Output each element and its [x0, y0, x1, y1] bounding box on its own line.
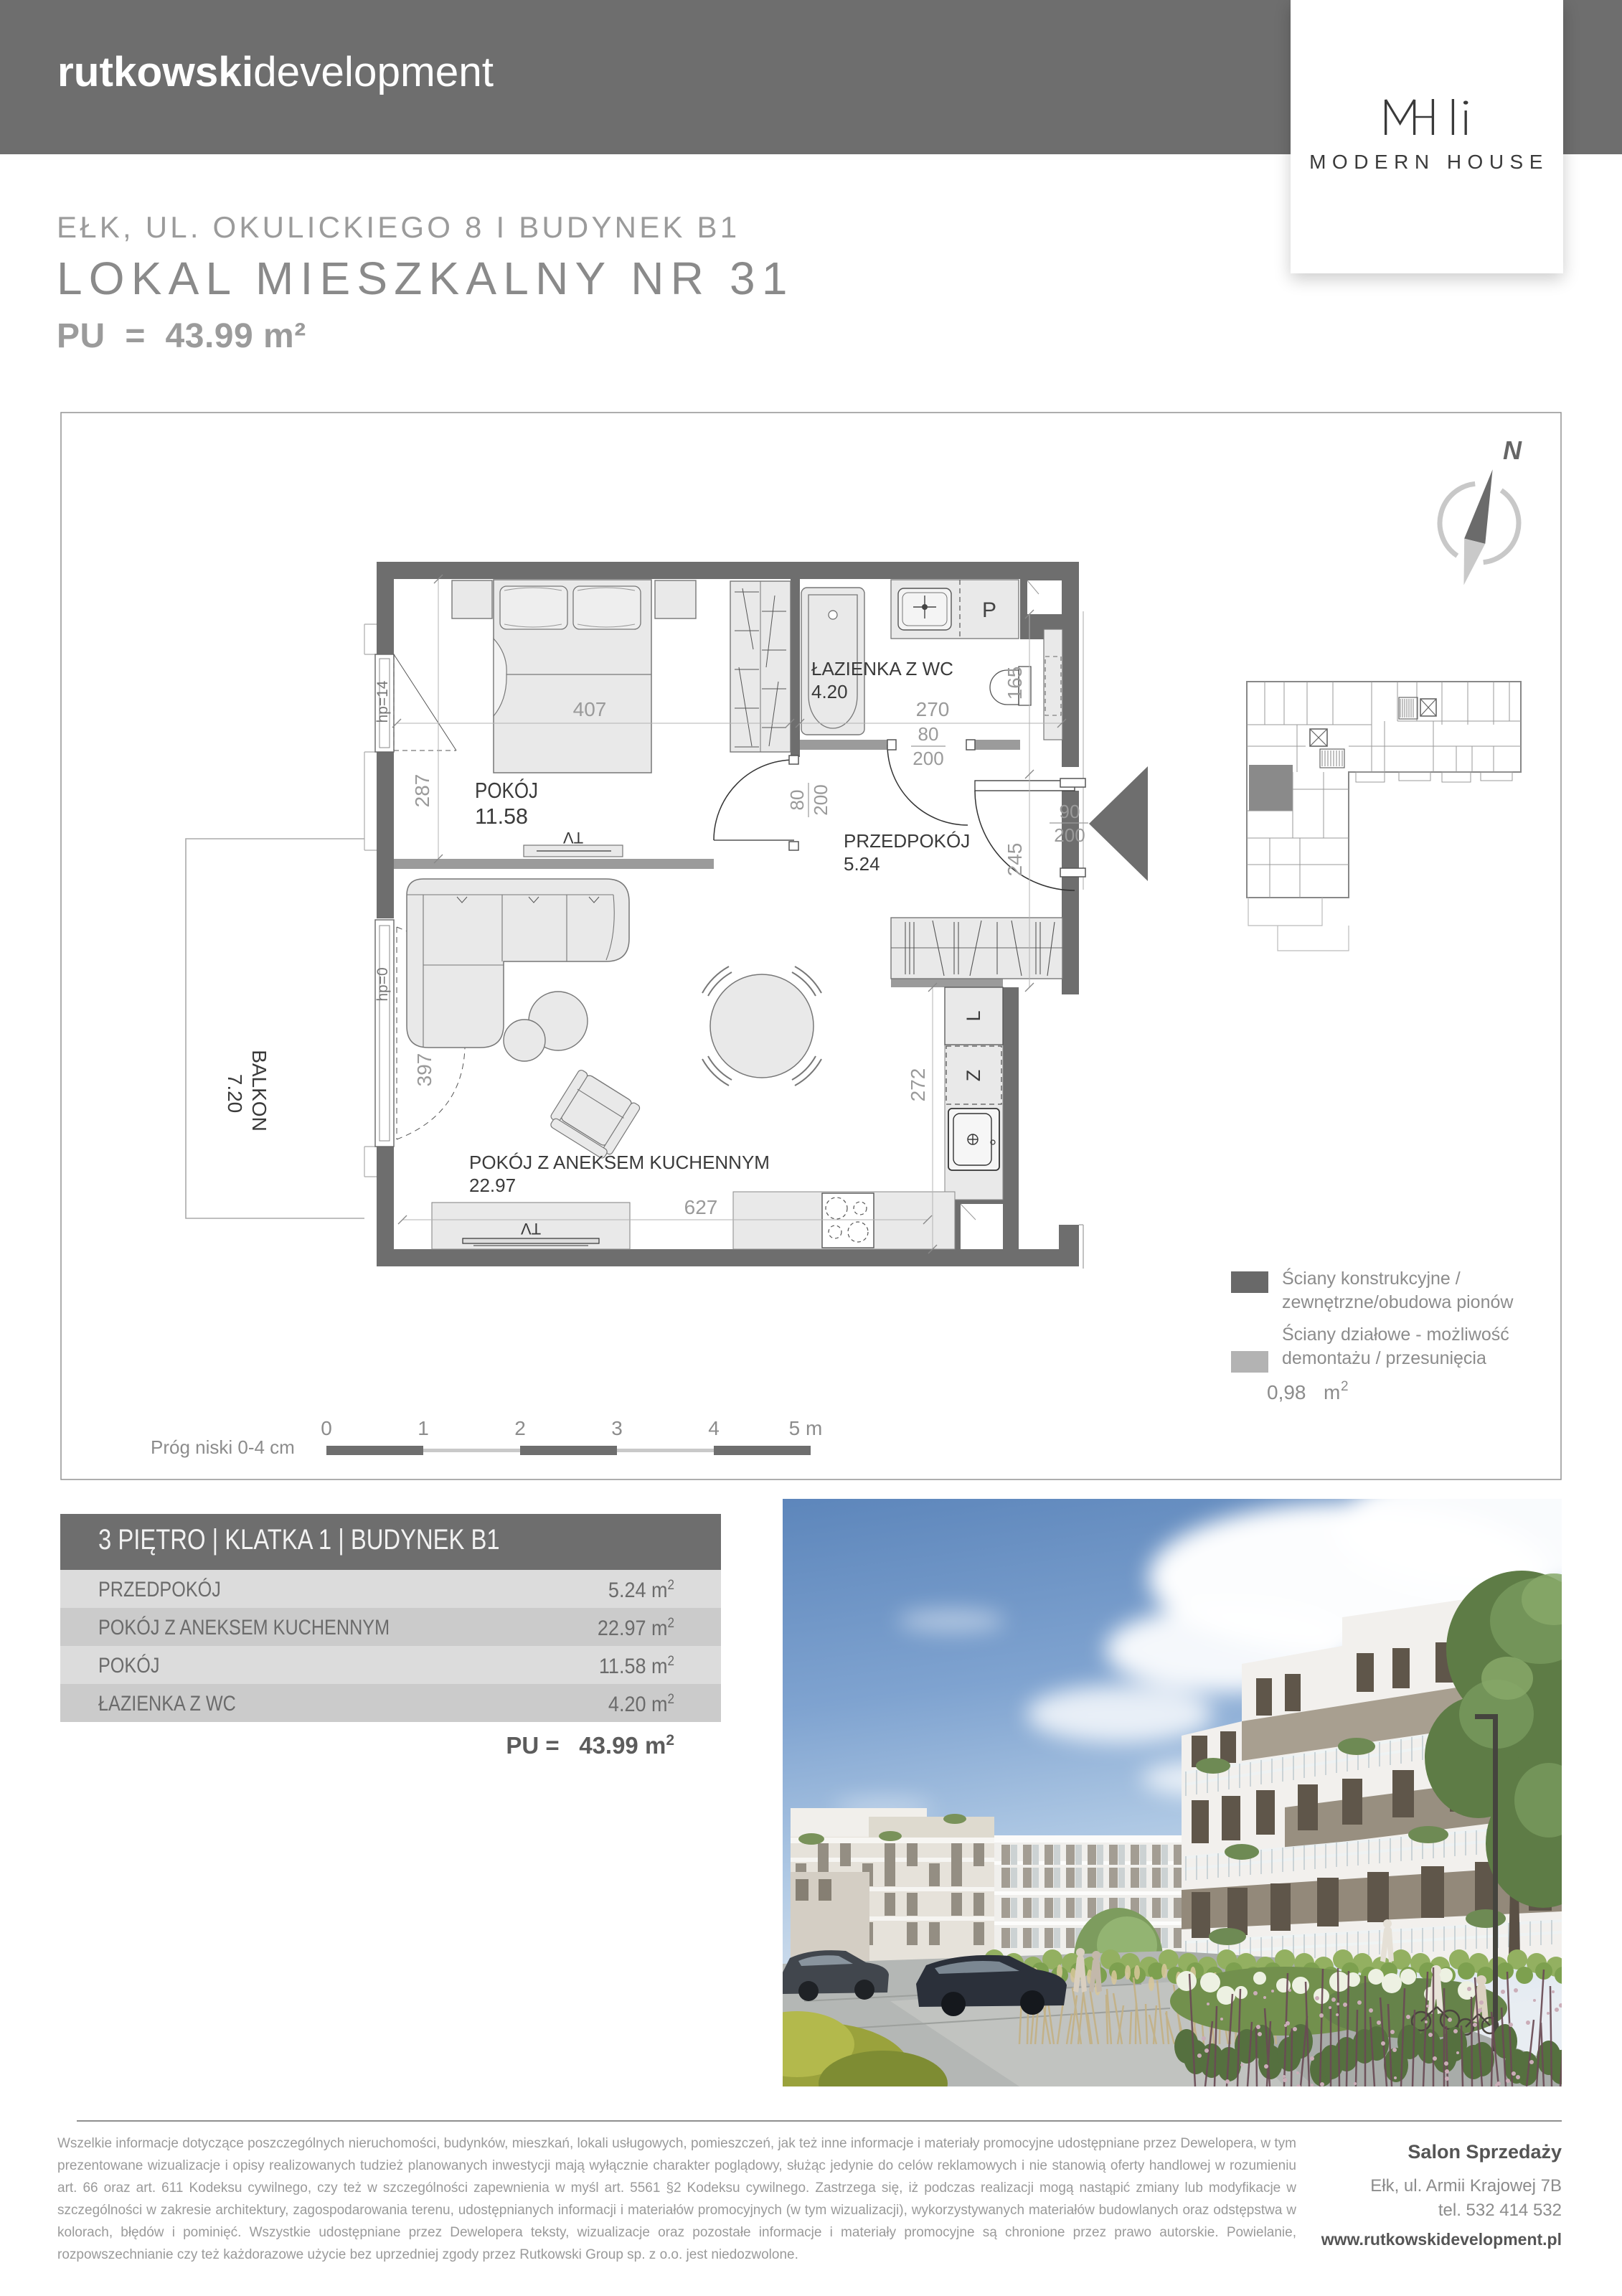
svg-text:627: 627: [684, 1196, 718, 1218]
svg-text:200: 200: [810, 784, 831, 815]
svg-text:POKÓJ Z ANEKSEM KUCHENNYM: POKÓJ Z ANEKSEM KUCHENNYM: [469, 1152, 770, 1173]
svg-text:80: 80: [918, 723, 939, 745]
svg-text:Ściany konstrukcyjne /: Ściany konstrukcyjne /: [1282, 1267, 1461, 1289]
svg-text:TV: TV: [563, 829, 583, 847]
svg-text:11.58: 11.58: [475, 804, 528, 829]
svg-text:POKÓJ: POKÓJ: [475, 778, 538, 803]
svg-text:287: 287: [411, 774, 433, 808]
svg-text:m: m: [1324, 1381, 1340, 1403]
svg-text:Próg niski 0-4 cm: Próg niski 0-4 cm: [151, 1436, 295, 1458]
svg-text:245: 245: [1004, 843, 1026, 877]
svg-text:5.24: 5.24: [844, 853, 880, 875]
svg-text:4: 4: [708, 1417, 720, 1439]
svg-text:397: 397: [413, 1053, 435, 1087]
svg-text:PRZEDPOKÓJ: PRZEDPOKÓJ: [844, 830, 970, 852]
svg-text:3: 3: [611, 1417, 623, 1439]
svg-text:407: 407: [573, 698, 607, 720]
svg-text:ŁAZIENKA Z WC: ŁAZIENKA Z WC: [811, 658, 953, 679]
svg-text:hp=0: hp=0: [374, 967, 391, 1001]
svg-text:22.97: 22.97: [469, 1175, 516, 1196]
svg-text:zewnętrzne/obudowa pionów: zewnętrzne/obudowa pionów: [1282, 1292, 1514, 1312]
svg-text:0,98: 0,98: [1267, 1381, 1306, 1403]
svg-text:7.20: 7.20: [224, 1074, 246, 1114]
svg-text:200: 200: [1054, 824, 1085, 846]
svg-text:Z: Z: [963, 1070, 984, 1082]
svg-text:0: 0: [321, 1417, 332, 1439]
svg-text:272: 272: [907, 1068, 929, 1102]
svg-text:P: P: [982, 598, 996, 622]
svg-text:1: 1: [418, 1417, 429, 1439]
svg-text:270: 270: [916, 698, 950, 720]
svg-text:hp=14: hp=14: [374, 680, 391, 723]
svg-text:Ściany działowe - możliwość: Ściany działowe - możliwość: [1282, 1323, 1509, 1345]
svg-text:BALKON: BALKON: [248, 1050, 270, 1131]
svg-text:TV: TV: [521, 1220, 541, 1238]
svg-text:demontażu / przesunięcia: demontażu / przesunięcia: [1282, 1348, 1486, 1368]
svg-text:80: 80: [786, 790, 808, 811]
svg-text:90: 90: [1060, 801, 1080, 822]
svg-text:4.20: 4.20: [811, 681, 848, 702]
svg-text:2: 2: [514, 1417, 526, 1439]
svg-text:5 m: 5 m: [789, 1417, 823, 1439]
svg-text:N: N: [1503, 436, 1522, 465]
svg-text:165: 165: [1004, 667, 1026, 700]
svg-text:2: 2: [1341, 1379, 1349, 1394]
svg-text:200: 200: [913, 748, 943, 769]
svg-text:L: L: [963, 1010, 984, 1021]
